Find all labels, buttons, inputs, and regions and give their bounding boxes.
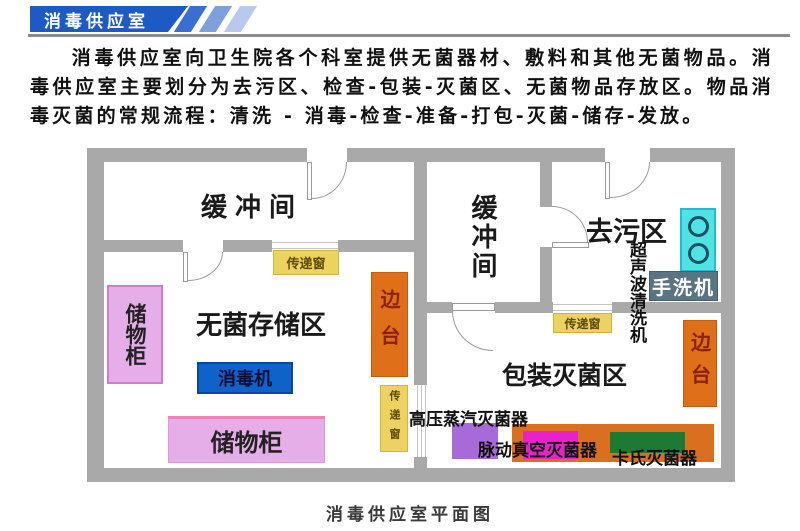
- cabinet-bottom-label: 储物柜: [211, 423, 283, 458]
- room-buffer-mid-label: 缓冲间: [464, 194, 501, 281]
- wall-c1: [427, 302, 452, 313]
- door2-arc: [188, 252, 223, 281]
- disinfector-label: 消毒机: [218, 365, 272, 391]
- room-sterile-storage-label: 无菌存储区: [196, 305, 326, 342]
- vacuum-sterilizer-label: 脉动真空灭菌器: [478, 436, 597, 461]
- pass-window-right: 传递窗: [553, 313, 612, 333]
- wall-divider-upper: [414, 162, 427, 385]
- door5-arc: [452, 311, 493, 351]
- steam-sterilizer-label: 高压蒸汽灭菌器: [409, 405, 528, 430]
- pass-window-top: 传递窗: [273, 250, 339, 275]
- wall-b-upper: [540, 162, 552, 207]
- sink-basin-icon: [688, 216, 709, 237]
- hand-washer: 手洗机: [649, 271, 718, 301]
- wall-inner-a2: [223, 240, 272, 252]
- wall-c2: [495, 302, 553, 313]
- floor-plan: 缓冲间 缓冲间 去污区 无菌存储区 包装灭菌区 储物柜 消毒机 储物柜 边台 传…: [0, 0, 800, 531]
- wall-divider-lower: [414, 457, 427, 468]
- side-table-right-label: 边台: [686, 332, 715, 396]
- door4-opening: [540, 207, 552, 247]
- pass-window-mid: 传递窗: [380, 385, 408, 452]
- ultrasonic-cleaner-label: 超声波清洗机: [624, 241, 649, 343]
- wall-outer-right: [721, 148, 735, 482]
- disinfector-machine: 消毒机: [197, 362, 293, 394]
- plan-caption: 消毒供应室平面图: [0, 500, 800, 525]
- door1-opening: [307, 148, 347, 162]
- cabinet-left-label: 储物柜: [120, 303, 150, 366]
- door2-leaf: [183, 252, 188, 282]
- door1-arc: [312, 162, 347, 199]
- cabinet-left: 储物柜: [107, 285, 163, 384]
- wall-outer-bottom: [87, 468, 735, 482]
- cabinet-bottom: 储物柜: [168, 416, 325, 463]
- side-table-left: 边台: [371, 272, 408, 377]
- door5-leaf: [452, 303, 495, 311]
- room-buffer-left-label: 缓冲间: [201, 187, 303, 224]
- pass-window-right-label: 传递窗: [564, 315, 600, 332]
- side-table-left-label: 边台: [375, 289, 404, 361]
- door4-arc: [552, 206, 588, 242]
- cassette-sterilizer-label: 卡氏灭菌器: [612, 444, 697, 469]
- door4-leaf: [552, 242, 589, 248]
- door3-leaf: [605, 162, 610, 199]
- room-packing-label: 包装灭菌区: [502, 356, 627, 392]
- door1-leaf: [307, 162, 312, 200]
- door2-opening: [183, 240, 223, 252]
- sink-basin-icon: [688, 243, 709, 264]
- door3-arc: [610, 162, 650, 198]
- pass-window-mid-label: 传递窗: [386, 390, 402, 447]
- wall-inner-a1: [104, 240, 183, 252]
- door3-opening: [605, 148, 650, 162]
- hand-washer-label: 手洗机: [652, 273, 715, 300]
- wash-sink: [680, 208, 716, 272]
- pass-window-right-glass: [553, 302, 612, 313]
- wall-outer-left: [87, 148, 104, 482]
- wall-b-lower: [540, 247, 552, 302]
- side-table-right: 边台: [683, 320, 717, 407]
- page: 消毒供应室 消毒供应室向卫生院各个科室提供无菌器材、敷料和其他无菌物品。消毒供应…: [0, 0, 800, 531]
- wall-inner-a3: [338, 240, 415, 252]
- pass-window-top-label: 传递窗: [286, 253, 325, 272]
